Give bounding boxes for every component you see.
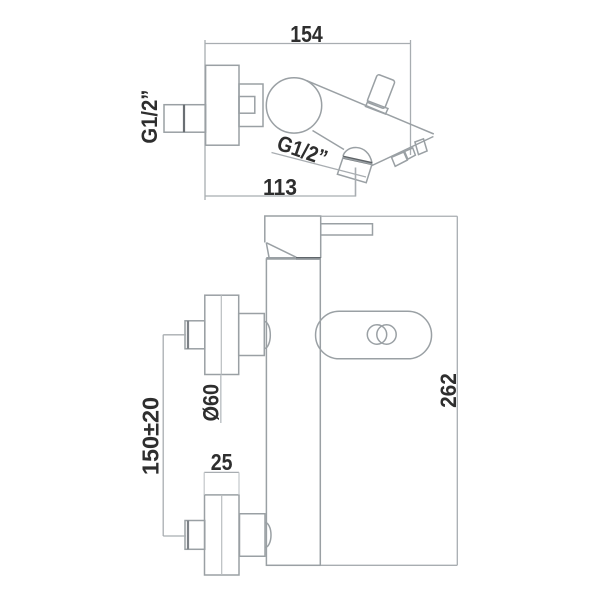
svg-text:113: 113 <box>263 174 297 200</box>
svg-text:262: 262 <box>437 373 462 408</box>
svg-text:154: 154 <box>290 22 323 48</box>
svg-text:G1/2”: G1/2” <box>138 90 162 144</box>
svg-text:150±20: 150±20 <box>138 397 164 475</box>
svg-text:25: 25 <box>211 450 233 476</box>
svg-text:Ø60: Ø60 <box>200 384 224 421</box>
